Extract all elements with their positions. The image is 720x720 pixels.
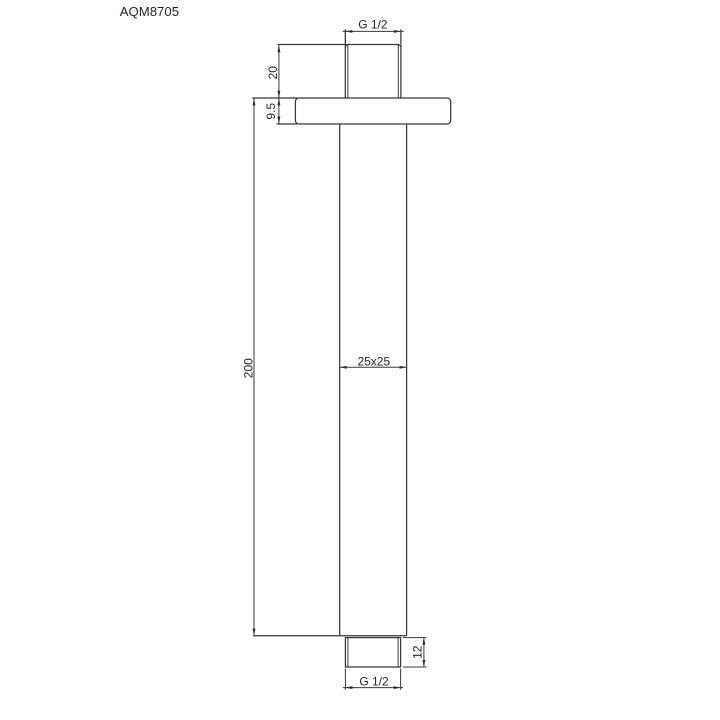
svg-text:12: 12 [411,645,425,659]
svg-text:G 1/2: G 1/2 [358,18,388,32]
svg-text:25x25: 25x25 [357,354,390,368]
svg-text:G 1/2: G 1/2 [359,675,389,689]
svg-text:20: 20 [266,66,280,80]
svg-text:200: 200 [241,358,255,378]
svg-text:AQM8705: AQM8705 [120,4,179,19]
svg-text:9.5: 9.5 [264,103,278,120]
